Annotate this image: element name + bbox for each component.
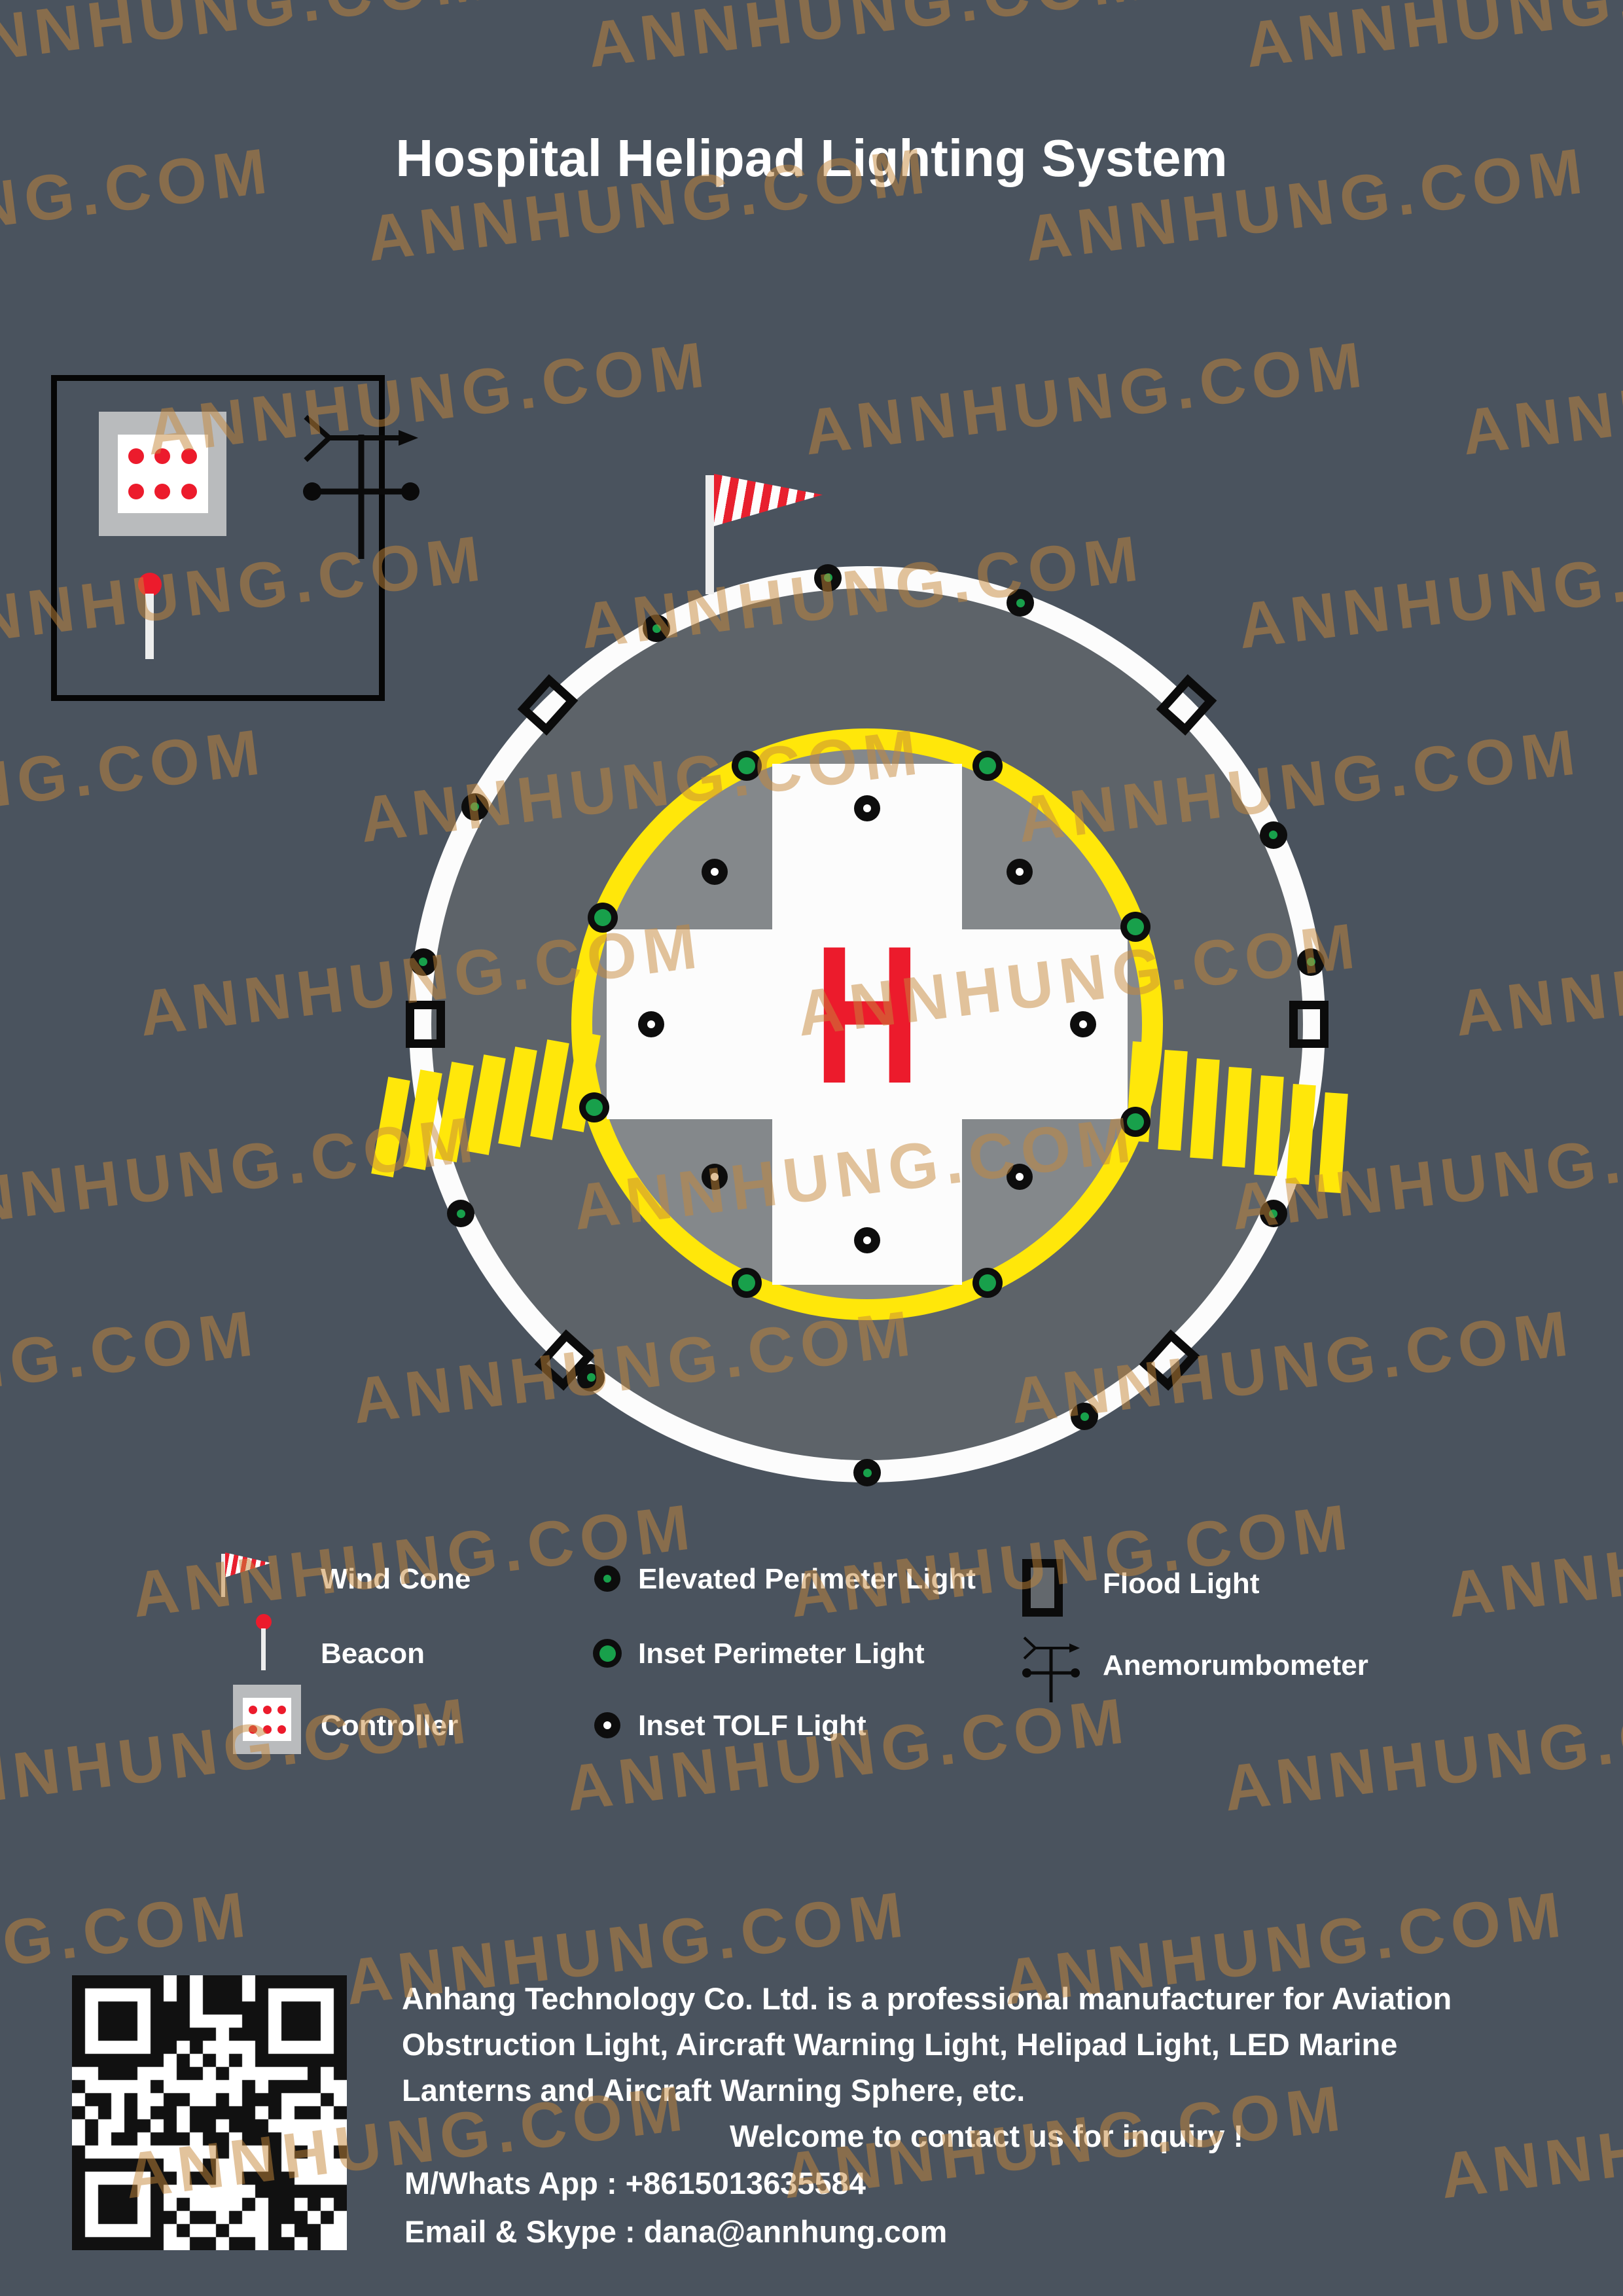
controller-led <box>249 1725 257 1734</box>
approach-chevron-bar <box>371 1077 410 1177</box>
controller-led <box>128 484 144 499</box>
controller-led <box>181 484 197 499</box>
approach-chevron-bar <box>1318 1092 1348 1193</box>
footer-welcome: Welcome to contact us for inquiry ! <box>730 2118 1243 2154</box>
footer-email: Email & Skype : dana@annhung.com <box>404 2214 947 2250</box>
controller-panel <box>118 435 208 513</box>
wind-cone-pole <box>705 475 714 594</box>
controller-led <box>154 484 170 499</box>
legend-label-anemorumbometer: Anemorumbometer <box>1103 1649 1368 1682</box>
watermark-text: ANNHUNG.COM <box>0 0 497 82</box>
watermark-text: ANNHUNG.COM <box>583 0 1155 82</box>
footer-line-2: Obstruction Light, Aircraft Warning Ligh… <box>402 2026 1397 2062</box>
controller-led <box>154 448 170 464</box>
footer-whatsapp: M/Whats App : +8615013635584 <box>404 2165 866 2201</box>
watermark-text: ANNHUNG.COM <box>1443 1490 1623 1632</box>
watermark-text: ANNHUNG.COM <box>0 1296 262 1439</box>
controller-icon <box>99 412 226 536</box>
legend-label-flood: Flood Light <box>1103 1568 1259 1600</box>
beacon-icon <box>138 573 162 596</box>
anemometer-icon <box>1018 1634 1090 1706</box>
controller-led <box>128 448 144 464</box>
controller-led <box>249 1706 257 1714</box>
inset-tolf-light-icon <box>594 1712 620 1738</box>
watermark-text: ANNHUNG.COM <box>1450 908 1623 1051</box>
controller-led <box>181 448 197 464</box>
controller-led <box>263 1706 272 1714</box>
poster: Hospital Helipad Lighting System <box>0 0 1623 2296</box>
controller-led <box>263 1725 272 1734</box>
page-title: Hospital Helipad Lighting System <box>0 128 1623 188</box>
watermark-text: ANNHUNG.COM <box>0 1102 483 1245</box>
legend-label-inset-tolf: Inset TOLF Light <box>638 1710 866 1742</box>
legend-label-wind-cone: Wind Cone <box>321 1563 471 1596</box>
inset-perimeter-light-icon <box>593 1639 622 1668</box>
watermark-text: ANNHUNG.COM <box>1436 2071 1623 2214</box>
watermark-text: ANNHUNG.COM <box>785 1490 1357 1632</box>
watermark-text: ANNHUNG.COM <box>1241 0 1623 82</box>
watermark-text: ANNHUNG.COM <box>0 715 270 857</box>
elevated-perimeter-light-icon <box>594 1566 620 1592</box>
legend-label-controller: Controller <box>321 1710 458 1742</box>
equipment-inset-box <box>51 375 385 701</box>
footer-line-1: Anhang Technology Co. Ltd. is a professi… <box>402 1981 1452 2017</box>
legend-label-beacon: Beacon <box>321 1638 425 1670</box>
watermark-text: ANNHUNG.COM <box>128 1490 700 1632</box>
qr-code <box>72 1975 347 2250</box>
wind-cone-flag-icon <box>225 1552 271 1577</box>
legend-label-inset-perimeter: Inset Perimeter Light <box>638 1638 925 1670</box>
flood-light-icon <box>1022 1559 1063 1617</box>
controller-panel <box>243 1698 291 1741</box>
controller-led <box>277 1725 286 1734</box>
wind-cone-icon <box>221 1554 225 1597</box>
footer-line-3: Lanterns and Aircraft Warning Sphere, et… <box>402 2072 1025 2108</box>
legend-label-elevated: Elevated Perimeter Light <box>638 1563 976 1596</box>
wind-cone-icon <box>714 474 823 526</box>
anemometer-icon <box>294 408 425 569</box>
watermark-text: ANNHUNG.COM <box>1234 521 1623 664</box>
helipad-h-marking: H <box>814 916 920 1113</box>
watermark-text: ANNHUNG.COM <box>800 327 1372 470</box>
controller-led <box>277 1706 286 1714</box>
beacon-pole <box>261 1628 266 1670</box>
watermark-text: ANNHUNG.COM <box>1219 1683 1623 1826</box>
beacon-pole <box>145 594 154 659</box>
controller-icon <box>233 1685 301 1754</box>
beacon-icon <box>256 1614 272 1630</box>
watermark-text: ANNHUNG.COM <box>1457 327 1623 470</box>
